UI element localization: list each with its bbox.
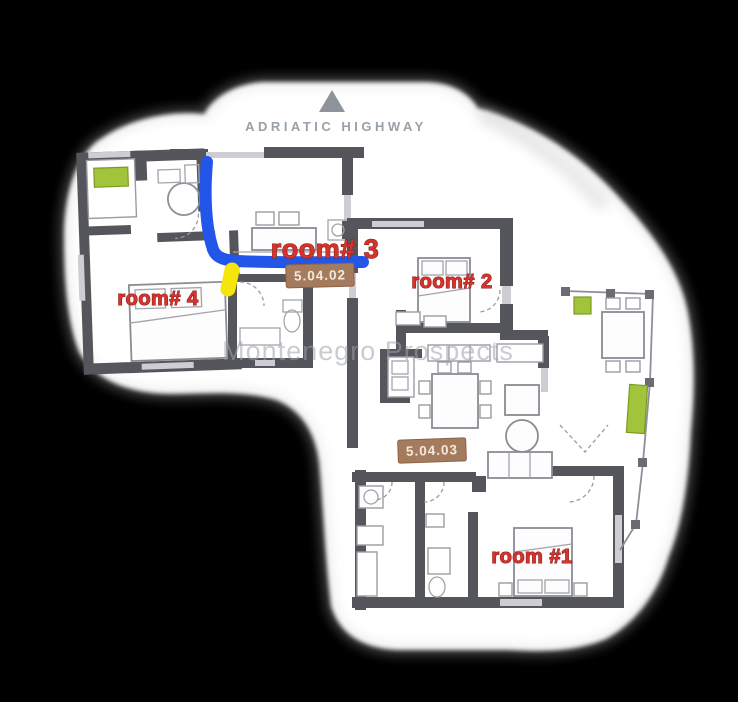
unit-badge-5-04-03: 5.04.03 bbox=[398, 438, 467, 463]
floor-plan-canvas: ADRIATIC HIGHWAY bbox=[0, 0, 738, 702]
greenery-planter bbox=[626, 384, 647, 433]
terrace-chair bbox=[626, 298, 640, 309]
room-3-label: room# 3 bbox=[271, 234, 380, 264]
shower bbox=[428, 548, 450, 574]
unit-badge-5-04-02: 5.04.02 bbox=[286, 263, 355, 288]
wall bbox=[342, 147, 353, 195]
room-4-label: room# 4 bbox=[117, 288, 199, 310]
window bbox=[344, 195, 351, 221]
floor-plan-screenshot: ADRIATIC HIGHWAY bbox=[0, 0, 738, 702]
chair bbox=[480, 405, 491, 418]
wall bbox=[352, 472, 476, 482]
dresser bbox=[396, 312, 420, 325]
railing-post bbox=[631, 520, 640, 529]
badge-label: 5.04.02 bbox=[294, 267, 346, 283]
terrace-door bbox=[541, 368, 548, 392]
wall bbox=[472, 476, 486, 492]
railing-post bbox=[606, 289, 615, 298]
sink-icon bbox=[426, 514, 444, 527]
room-1-label: room #1 bbox=[491, 546, 572, 568]
sink-icon bbox=[357, 526, 383, 545]
window bbox=[372, 221, 424, 227]
nightstand bbox=[499, 583, 512, 596]
wall bbox=[500, 218, 513, 286]
badge-label: 5.04.03 bbox=[406, 442, 459, 459]
chair bbox=[419, 381, 430, 394]
room-2-label: room# 2 bbox=[411, 271, 492, 293]
terrace-chair bbox=[626, 361, 640, 372]
greenery-planter bbox=[574, 297, 591, 314]
railing-post bbox=[645, 290, 654, 299]
table bbox=[256, 212, 274, 225]
dresser bbox=[424, 316, 446, 327]
chair bbox=[419, 405, 430, 418]
rug-square bbox=[505, 385, 539, 415]
wall bbox=[415, 482, 425, 602]
wall bbox=[430, 218, 512, 229]
terrace-table bbox=[602, 312, 644, 358]
door-marker bbox=[228, 270, 232, 289]
washer-icon bbox=[359, 486, 383, 508]
sofa bbox=[488, 452, 552, 478]
wall bbox=[83, 225, 131, 236]
railing-post bbox=[638, 458, 647, 467]
greenery-planter bbox=[94, 167, 129, 187]
terrace-chair bbox=[606, 298, 620, 309]
window bbox=[206, 152, 266, 158]
nightstand bbox=[574, 583, 587, 596]
terrace-chair bbox=[606, 361, 620, 372]
wall bbox=[468, 512, 478, 602]
bathtub bbox=[357, 552, 377, 596]
dining-table bbox=[432, 374, 478, 428]
wall bbox=[352, 597, 624, 608]
watermark: Montenegro Prospects bbox=[222, 336, 514, 366]
chair bbox=[480, 381, 491, 394]
highway-label: ADRIATIC HIGHWAY bbox=[245, 119, 427, 134]
table bbox=[279, 212, 299, 225]
wall bbox=[347, 298, 358, 448]
balcony-door bbox=[502, 286, 511, 306]
railing-post bbox=[561, 287, 570, 296]
round-table bbox=[506, 420, 538, 452]
window bbox=[500, 599, 542, 606]
window bbox=[615, 515, 622, 563]
